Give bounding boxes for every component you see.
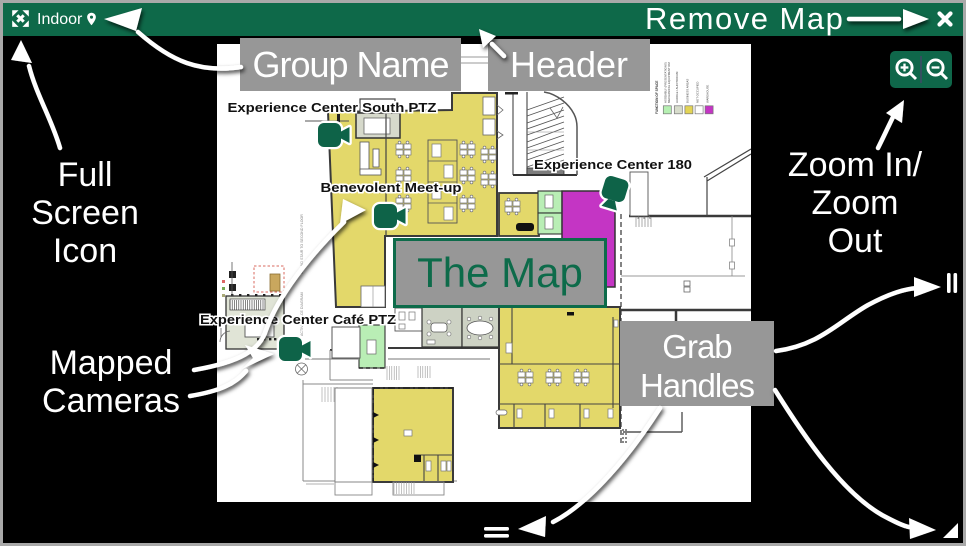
svg-text:Experience Center South PTZ: Experience Center South PTZ bbox=[228, 101, 437, 115]
svg-text:Experience Center 180: Experience Center 180 bbox=[534, 158, 692, 172]
svg-text:Experience Center Café PTZ: Experience Center Café PTZ bbox=[200, 313, 396, 327]
svg-text:Benevolent Meet-up: Benevolent Meet-up bbox=[321, 181, 462, 195]
